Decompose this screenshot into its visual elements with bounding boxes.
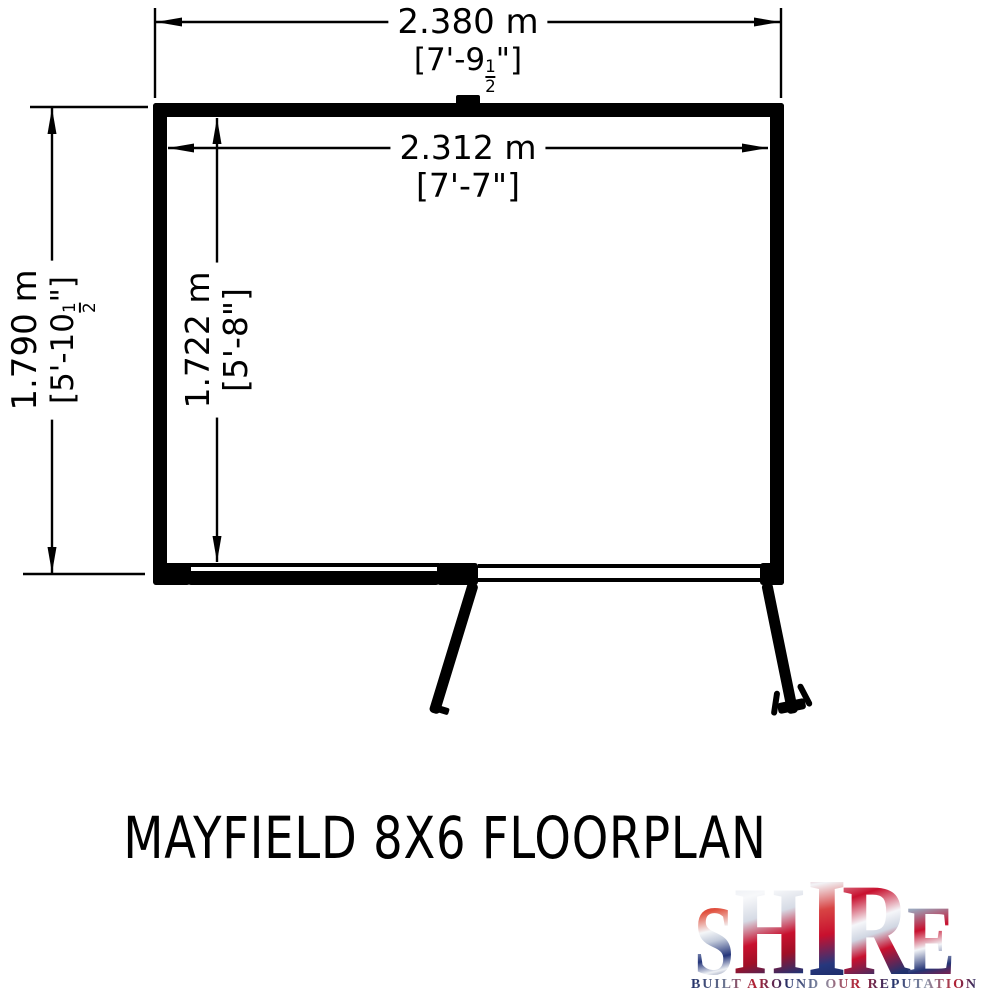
door-left-leaf xyxy=(429,581,487,717)
dimension-metric-label: 1.790 m xyxy=(6,260,44,419)
dimension-outer-depth: 1.790 m [5'-1012"] xyxy=(6,260,98,419)
door-right-leaf xyxy=(745,579,814,718)
arrowhead-up xyxy=(48,108,57,134)
dimension-imperial-label: [5'-8"] xyxy=(217,262,255,417)
fraction: 12 xyxy=(61,302,98,313)
wall-top xyxy=(153,103,784,117)
imperial-prefix: [7'-9 xyxy=(414,42,485,78)
dimension-outer-width: 2.380 m [7'-912"] xyxy=(388,3,547,95)
dimension-imperial-label: [7'-7"] xyxy=(390,167,545,205)
dimension-inner-depth: 1.722 m [5'-8"] xyxy=(179,262,255,417)
logo-letter-e: E xyxy=(907,891,955,991)
shire-logo-word: S H I R E xyxy=(686,876,994,976)
arrowhead-down xyxy=(213,536,222,562)
door-threshold-line-top xyxy=(478,564,762,568)
imperial-prefix: [5'-8"] xyxy=(216,288,255,392)
dimension-imperial-label: [7'-912"] xyxy=(388,41,547,95)
dimension-metric-label: 2.380 m xyxy=(388,3,547,41)
fraction-denominator: 2 xyxy=(485,78,496,96)
imperial-prefix: [5'-10 xyxy=(45,313,81,404)
arrowhead-left xyxy=(168,144,194,153)
plan-title: MAYFIELD 8X6 FLOORPLAN xyxy=(123,804,766,872)
floorplan-page: 2.380 m [7'-912"] 2.312 m [7'-7"] 1.790 … xyxy=(0,0,1000,1000)
imperial-prefix: [7'-7"] xyxy=(416,166,520,205)
arrowhead-left xyxy=(156,18,182,27)
dimension-inner-width: 2.312 m [7'-7"] xyxy=(390,129,545,205)
arrowhead-up xyxy=(213,118,222,144)
imperial-suffix: "] xyxy=(496,42,522,78)
door-center-post xyxy=(437,563,478,585)
front-wall-corner-right xyxy=(760,563,784,585)
top-center-tab-marker xyxy=(456,95,480,105)
shire-logo-tagline: BUILT AROUND OUR REPUTATION xyxy=(691,977,978,993)
dimension-metric-label: 1.722 m xyxy=(179,262,217,417)
door-left-panel xyxy=(429,581,479,714)
fraction-denominator: 2 xyxy=(81,302,99,313)
front-wall-sill-bar xyxy=(187,571,440,585)
dimension-metric-label: 2.312 m xyxy=(390,129,545,167)
dimension-imperial-label: [5'-1012"] xyxy=(44,260,98,419)
arrowhead-right xyxy=(742,144,768,153)
fraction-numerator: 1 xyxy=(485,58,496,78)
arrowhead-right xyxy=(754,18,780,27)
front-wall-inner-line-left xyxy=(167,563,439,567)
wall-left xyxy=(153,103,167,585)
fraction: 12 xyxy=(485,58,496,95)
wall-right xyxy=(770,103,784,585)
floorplan-drawing xyxy=(0,0,1000,780)
arrowhead-down xyxy=(48,547,57,573)
door-threshold-line-bottom xyxy=(478,578,762,582)
imperial-suffix: "] xyxy=(45,276,81,302)
shire-logo: S H I R E BUILT AROUND OUR REPUTATION xyxy=(686,876,994,998)
fraction-numerator: 1 xyxy=(61,302,81,313)
logo-letter-s: S xyxy=(694,891,734,991)
